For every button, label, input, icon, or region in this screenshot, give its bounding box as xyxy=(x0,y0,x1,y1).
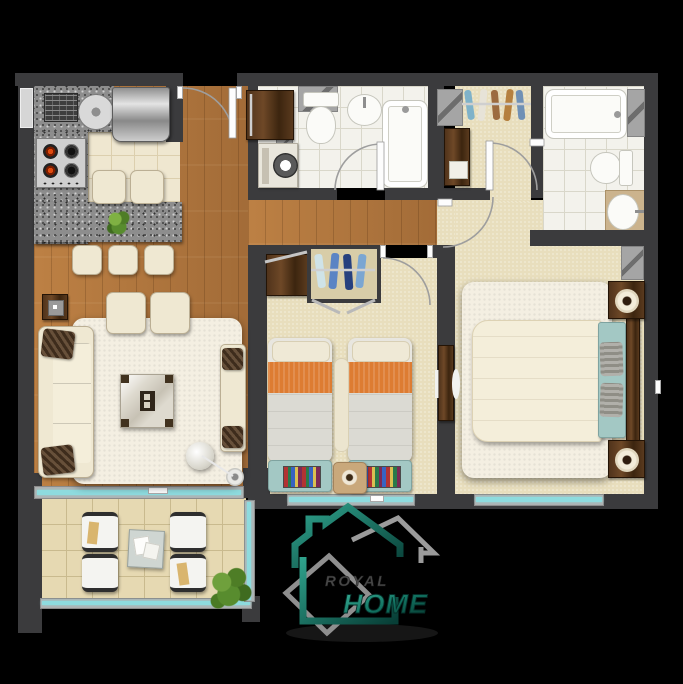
side-table-dot xyxy=(53,305,57,309)
bar-stool xyxy=(92,170,126,204)
sofa-pillow xyxy=(40,444,75,476)
logo-shadow xyxy=(286,624,438,642)
master-pillow xyxy=(599,383,623,418)
bar-stool xyxy=(108,245,138,275)
floor-lamp-shade xyxy=(186,442,214,470)
balcony-chair xyxy=(82,554,118,592)
stove-knobs xyxy=(41,181,81,186)
logo-house-gray-roof xyxy=(352,518,434,563)
sink-faucet xyxy=(363,97,366,108)
table-paper xyxy=(142,542,160,561)
top-wall-left xyxy=(15,73,183,86)
sofa-pillow xyxy=(40,328,75,360)
sink-basin xyxy=(78,94,114,130)
master-pillow xyxy=(599,342,623,377)
book-stack xyxy=(363,466,401,488)
table-lamp xyxy=(615,289,639,313)
table-tray xyxy=(140,391,155,411)
top-wall-right xyxy=(237,73,658,86)
bench-pillow xyxy=(222,348,243,370)
runner-rug xyxy=(334,358,349,452)
master-headboard xyxy=(626,318,640,442)
table-lamp xyxy=(615,448,639,472)
kitchen-window xyxy=(20,88,33,128)
stove-burner xyxy=(43,144,58,159)
armchair-ottoman xyxy=(106,292,146,334)
tv-panel xyxy=(438,345,454,421)
window-handle xyxy=(148,487,168,494)
round-stool xyxy=(333,462,367,494)
master-bath-bottom-wall xyxy=(530,230,644,246)
logo-house-teal-body xyxy=(303,557,395,621)
kids-wardrobe-alcove xyxy=(307,245,381,303)
coffee-table xyxy=(120,374,174,428)
chair-towel xyxy=(87,522,99,545)
towel xyxy=(449,161,468,179)
kids-door-jamb xyxy=(427,245,433,258)
stove-burner xyxy=(64,144,79,159)
bed-orange-blanket xyxy=(268,362,332,393)
book-stack xyxy=(283,466,321,488)
logo-house-gray-diamond xyxy=(286,556,369,633)
nightstand xyxy=(608,281,645,319)
tray-item xyxy=(144,402,150,408)
logo-text-home: HOME xyxy=(343,589,428,619)
kids-bedroom-glass xyxy=(289,497,413,502)
stove xyxy=(36,138,86,188)
living-balcony-glass xyxy=(37,490,241,495)
armchair-ottoman xyxy=(150,292,190,334)
master-toilet-bowl xyxy=(590,152,621,184)
island-plant xyxy=(106,210,132,236)
kids-bed xyxy=(268,338,332,462)
refrigerator xyxy=(112,87,170,142)
washer-drum xyxy=(273,153,298,178)
stove-burner xyxy=(64,163,79,178)
bed-orange-blanket xyxy=(348,362,412,393)
duct-shaft xyxy=(437,89,463,126)
washing-machine xyxy=(258,143,298,188)
toilet-bowl xyxy=(306,106,336,144)
bar-stool xyxy=(144,245,174,275)
bathroom-bottom-wall-left xyxy=(248,188,337,200)
bed-pillow xyxy=(352,341,410,362)
bed-duvet xyxy=(348,393,412,462)
stool-ring xyxy=(339,467,360,488)
entry-door-jamb xyxy=(177,86,183,99)
logo-text-royal: ROYAL xyxy=(325,573,389,590)
stove-burner xyxy=(43,163,58,178)
wood-floor-hall xyxy=(248,200,437,245)
coat-closet xyxy=(246,90,294,140)
master-bath-wall xyxy=(531,86,543,198)
duct-shaft xyxy=(627,89,645,137)
round-sink xyxy=(347,94,382,126)
table-corner xyxy=(121,375,129,383)
table-corner xyxy=(165,419,173,427)
bed-duvet xyxy=(268,393,332,462)
master-bedroom-glass xyxy=(476,497,602,502)
nightstand xyxy=(608,440,645,478)
bar-stool xyxy=(130,170,164,204)
dish-rack xyxy=(44,93,78,122)
chair-towel xyxy=(177,562,190,585)
carpet-master-door-patch xyxy=(437,200,455,245)
closet-shelf xyxy=(444,128,470,186)
balcony-chair xyxy=(170,512,206,552)
kids-closet xyxy=(266,254,308,296)
balcony-chair xyxy=(82,512,118,552)
master-toilet-tank xyxy=(619,150,633,186)
duct-shaft xyxy=(621,246,644,280)
kids-bed xyxy=(348,338,412,462)
bed-pillow xyxy=(272,341,330,362)
floor-lamp-base xyxy=(226,468,244,486)
kids-door-jamb xyxy=(380,245,386,258)
toilet-tank xyxy=(303,92,339,107)
bathtub xyxy=(382,100,428,188)
tray-item xyxy=(144,394,150,400)
oval-sink xyxy=(607,194,639,230)
tub-faucet xyxy=(614,111,621,118)
bar-stool xyxy=(72,245,102,275)
living-kids-wall xyxy=(248,245,267,494)
balcony-chair xyxy=(170,554,206,592)
floor-plan-render: ROYAL HOME xyxy=(0,0,683,684)
kids-bench xyxy=(268,460,332,492)
washer-controls xyxy=(262,148,269,184)
table-corner xyxy=(165,375,173,383)
master-bathtub xyxy=(545,89,627,139)
side-table xyxy=(42,294,68,320)
logo-royal-home: ROYAL HOME xyxy=(286,507,438,642)
entry-door-jamb xyxy=(236,86,242,99)
logo-house-teal-roof xyxy=(295,507,400,568)
balcony-table xyxy=(127,529,165,569)
window-handle xyxy=(370,495,384,502)
table-corner xyxy=(121,419,129,427)
balcony-plant xyxy=(208,566,254,612)
master-bed-duvet xyxy=(472,320,602,442)
bench-pillow xyxy=(222,426,243,448)
master-headboard-cushion xyxy=(598,322,626,438)
bathroom-bottom-wall-right xyxy=(385,188,490,200)
left-wall xyxy=(18,73,34,473)
window-handle xyxy=(655,380,661,394)
right-wall xyxy=(644,73,658,509)
tub-faucet xyxy=(402,106,409,113)
sink-faucet xyxy=(635,210,644,213)
